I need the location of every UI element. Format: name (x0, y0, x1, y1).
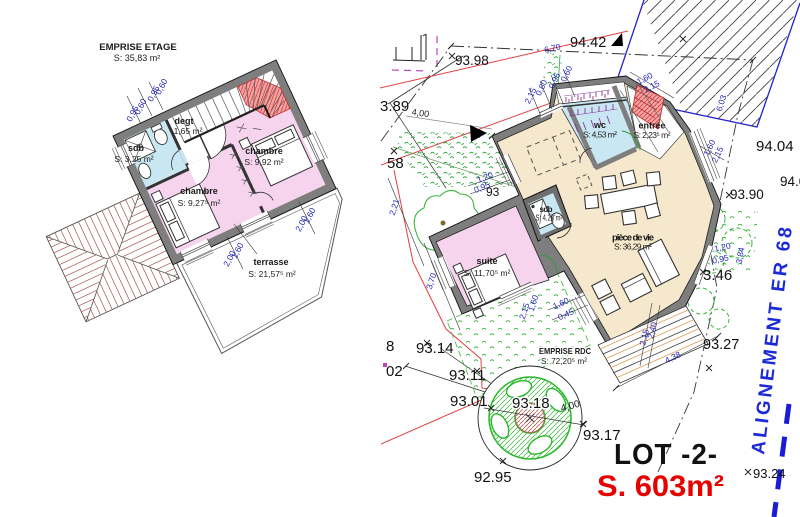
svg-text:entrée: entrée (638, 121, 665, 131)
svg-text:93.24: 93.24 (753, 466, 786, 481)
svg-text:S: 3,25 m²: S: 3,25 m² (114, 154, 153, 164)
svg-text:LOT -2-: LOT -2- (614, 439, 718, 471)
svg-text:S: 4,53 m²: S: 4,53 m² (583, 130, 617, 140)
svg-text:1,65 m²: 1,65 m² (174, 126, 203, 136)
svg-text:8: 8 (386, 338, 394, 355)
svg-text:degt: degt (175, 116, 194, 126)
svg-text:S: 72,20⁵ m²: S: 72,20⁵ m² (541, 356, 587, 366)
svg-text:S: 2,23⁵ m²: S: 2,23⁵ m² (634, 130, 671, 140)
svg-text:3.89: 3.89 (380, 98, 409, 115)
svg-text:chambre: chambre (245, 146, 283, 156)
svg-text:suite: suite (476, 256, 497, 266)
svg-text:93.11: 93.11 (449, 367, 485, 384)
svg-text:S: 9,92 m²: S: 9,92 m² (244, 157, 283, 167)
svg-text:EMPRISE RDC: EMPRISE RDC (539, 346, 591, 356)
svg-text:02: 02 (386, 363, 403, 380)
svg-text:94.42: 94.42 (570, 35, 606, 51)
svg-text:S: 36,29 m²: S: 36,29 m² (614, 242, 652, 252)
svg-text:93.01: 93.01 (450, 393, 488, 410)
svg-text:92.95: 92.95 (474, 469, 512, 486)
svg-text:terrasse: terrasse (253, 257, 288, 267)
svg-text:S: 9,27⁵ m²: S: 9,27⁵ m² (178, 198, 221, 208)
svg-text:wc: wc (593, 120, 606, 130)
svg-text:93.18: 93.18 (512, 395, 550, 412)
svg-text:EMPRISE ETAGE: EMPRISE ETAGE (99, 42, 176, 53)
svg-text:S: 21,57⁵ m²: S: 21,57⁵ m² (248, 269, 296, 279)
svg-text:3.46: 3.46 (703, 267, 732, 284)
svg-text:93.98: 93.98 (455, 53, 489, 68)
svg-text:S. 603m²: S. 603m² (597, 470, 724, 503)
svg-text:chambre: chambre (180, 186, 218, 196)
svg-text:S: 4,25 m²: S: 4,25 m² (536, 214, 563, 223)
svg-text:58: 58 (387, 155, 404, 172)
svg-text:S: 35,83 m²: S: 35,83 m² (114, 53, 161, 63)
svg-text:93: 93 (486, 185, 500, 199)
svg-text:93.27: 93.27 (703, 337, 739, 353)
svg-text:sdb: sdb (128, 143, 145, 153)
svg-text:S: 11,70⁵ m²: S: 11,70⁵ m² (464, 268, 511, 278)
svg-text:93.90: 93.90 (730, 187, 764, 202)
svg-text:93.14: 93.14 (416, 340, 454, 357)
svg-text:94.04: 94.04 (756, 138, 794, 155)
svg-text:94.0: 94.0 (780, 174, 800, 189)
